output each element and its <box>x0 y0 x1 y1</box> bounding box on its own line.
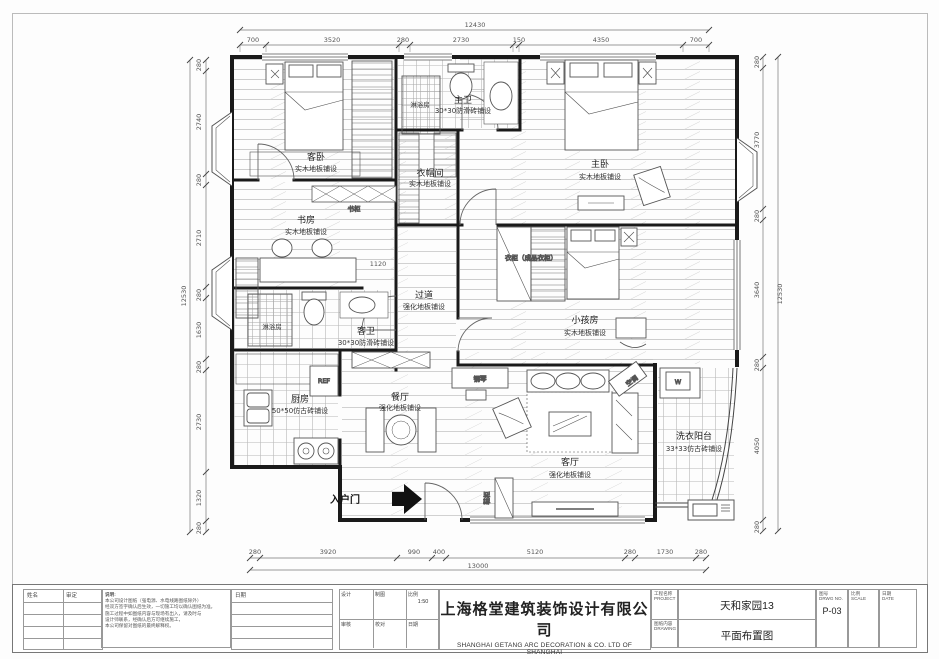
field-label: 制图 <box>374 590 406 599</box>
floor-plan-drawing: 入户门 书柜 <box>0 0 939 585</box>
wardrobe-label: 衣柜（成品衣柜） <box>505 253 557 262</box>
dim: 3920 <box>320 548 337 556</box>
dim: 280 <box>753 359 761 371</box>
drawing-label-en: DRAWING <box>654 626 676 631</box>
dim: 150 <box>513 36 525 44</box>
study-floor: 实木地板铺设 <box>285 227 327 236</box>
date-label-en: DATE <box>882 596 894 601</box>
living-name: 客厅 <box>561 456 579 468</box>
dim: 2730 <box>195 414 203 431</box>
dim: 280 <box>195 174 203 186</box>
titleblock-notes: 说明: 本公司设计图纸（强电源、水电线路图纸除外） 经双方签字确认后生效，一切施… <box>101 589 231 648</box>
dim: 400 <box>433 548 445 556</box>
dim: 280 <box>624 548 636 556</box>
laundry-fixtures: W <box>660 368 700 398</box>
dim-right-total: 12530 <box>776 284 784 305</box>
dining-name: 餐厅 <box>391 391 409 403</box>
titleblock-date-table: 日期 <box>231 589 333 650</box>
dim: 4050 <box>753 438 761 455</box>
dim-left-total: 12530 <box>180 286 188 307</box>
dim-top-total: 12430 <box>465 21 486 29</box>
master-bath-floor: 30*30防滑砖铺设 <box>435 106 491 115</box>
guest-bedroom-name: 客卧 <box>307 151 325 163</box>
dim: 2740 <box>195 114 203 131</box>
drawing-number-cell: 图号DRWG NO. P-03 <box>816 589 848 648</box>
guest-bedroom-floor: 实木地板铺设 <box>295 164 337 173</box>
living-floor: 强化地板铺设 <box>549 470 591 479</box>
dim: 3640 <box>753 282 761 299</box>
date-col-label: 日期 <box>235 591 246 599</box>
company-name-en: SHANGHAI GETANG ARC DECORATION & CO. LTD… <box>439 642 650 656</box>
dim: 700 <box>690 36 702 44</box>
dim: 5120 <box>527 548 544 556</box>
shower-master-label: 淋浴房 <box>410 100 430 109</box>
company-block: 上海格堂建筑装饰设计有限公司 SHANGHAI GETANG ARC DECOR… <box>438 589 651 650</box>
dim: 3770 <box>753 132 761 149</box>
dim-right: 280 3770 280 3640 280 4050 280 12530 <box>753 54 784 534</box>
shower-guest-label: 淋浴房 <box>262 322 282 331</box>
dim: 280 <box>695 548 707 556</box>
project-value: 天和家园13 <box>679 598 815 613</box>
hallway-floor: 强化地板铺设 <box>403 302 445 311</box>
shoe-cabinet-label: 鞋柜 <box>482 491 491 505</box>
piano-label: 钢琴 <box>474 375 488 383</box>
laundry-name: 洗衣阳台 <box>676 430 712 442</box>
dim: 280 <box>753 56 761 68</box>
dim: 2710 <box>195 230 203 247</box>
dim: 280 <box>195 289 203 301</box>
titleblock-fields: 设计 制图 比例1:50 审核 校对 日期 <box>339 589 440 650</box>
project-values: 天和家园13 平面布置图 <box>678 589 816 648</box>
dim-bottom: 280 3920 990 400 5120 280 1730 280 13000 <box>247 548 709 573</box>
fridge-label: REF <box>318 377 331 385</box>
name-label: 姓名 <box>27 591 38 599</box>
floor-plan-sheet: 入户门 书柜 <box>0 0 939 659</box>
dim: 2730 <box>453 36 470 44</box>
dim: 280 <box>195 361 203 373</box>
laundry-floor: 33*33仿古砖铺设 <box>666 444 722 453</box>
notes-line: 本公司保留对图纸的最终解释权。 <box>105 623 227 629</box>
hall-dim-1120: 1120 <box>370 260 387 268</box>
washer-label: W <box>675 378 682 386</box>
field-value: 1:50 <box>407 599 439 605</box>
project-labels: 工程名称PROJECT 图纸内容DRAWING <box>651 589 678 648</box>
dim: 4350 <box>593 36 610 44</box>
title-block: 姓名 审定 说明: 本公司设计图纸（强电源、水电线路图纸除外） 经双方签字确认后… <box>12 584 928 653</box>
field-label: 审核 <box>340 620 373 629</box>
dim-top: 12430 700 3520 280 2730 150 4350 700 <box>237 21 712 52</box>
dim: 990 <box>408 548 420 556</box>
field-label: 校对 <box>374 620 406 629</box>
dim: 1630 <box>195 322 203 339</box>
approve-label: 审定 <box>66 591 77 599</box>
cloakroom-floor: 实木地板铺设 <box>409 179 451 188</box>
guest-bath-floor: 30*30防滑砖铺设 <box>338 338 394 347</box>
dim: 280 <box>249 548 261 556</box>
master-bedroom-name: 主卧 <box>591 158 609 170</box>
date-cell: 日期DATE <box>879 589 917 648</box>
guest-bath-name: 客卫 <box>357 325 375 337</box>
field-label: 日期 <box>407 620 439 629</box>
cloakroom-name: 衣帽间 <box>416 167 443 179</box>
drawing-value: 平面布置图 <box>679 628 815 643</box>
dim-left: 280 2740 280 2710 280 1630 280 2730 1320… <box>180 57 209 535</box>
field-label: 比例 <box>407 590 439 599</box>
dim: 280 <box>397 36 409 44</box>
study-name: 书房 <box>297 214 315 226</box>
balcony-appliance <box>688 500 734 520</box>
dim: 280 <box>753 210 761 222</box>
notes-line: 经双方签字确认后生效，一切施工均以确认图纸为准。 <box>105 604 227 610</box>
kids-room-name: 小孩房 <box>571 314 598 326</box>
dim: 700 <box>247 36 259 44</box>
company-name-cn: 上海格堂建筑装饰设计有限公司 <box>439 598 650 640</box>
project-label-en: PROJECT <box>654 596 675 601</box>
scale-cell: 比例SCALE <box>848 589 879 648</box>
dim: 3520 <box>324 36 341 44</box>
number-label-en: DRWG NO. <box>819 596 843 601</box>
scale-label-en: SCALE <box>851 596 866 601</box>
dim: 280 <box>753 521 761 533</box>
field-label: 设计 <box>340 590 373 599</box>
kids-room-floor: 实木地板铺设 <box>564 328 606 337</box>
titleblock-name-table: 姓名 审定 <box>23 589 103 650</box>
kitchen-floor: 50*50仿古砖铺设 <box>272 406 328 415</box>
master-bedroom-floor: 实木地板铺设 <box>579 172 621 181</box>
master-bath-name: 主卫 <box>454 94 472 106</box>
kitchen-name: 厨房 <box>291 393 309 405</box>
entry-door-label: 入户门 <box>330 493 360 506</box>
dim: 1320 <box>195 490 203 507</box>
dim: 280 <box>195 522 203 534</box>
hallway-name: 过道 <box>415 289 433 301</box>
dim: 280 <box>195 59 203 71</box>
bookcase-label: 书柜 <box>348 204 362 213</box>
dining-floor: 强化地板铺设 <box>379 403 421 412</box>
dim-bottom-total: 13000 <box>468 562 489 570</box>
dim: 1730 <box>657 548 674 556</box>
drawing-number: P-03 <box>817 606 847 616</box>
